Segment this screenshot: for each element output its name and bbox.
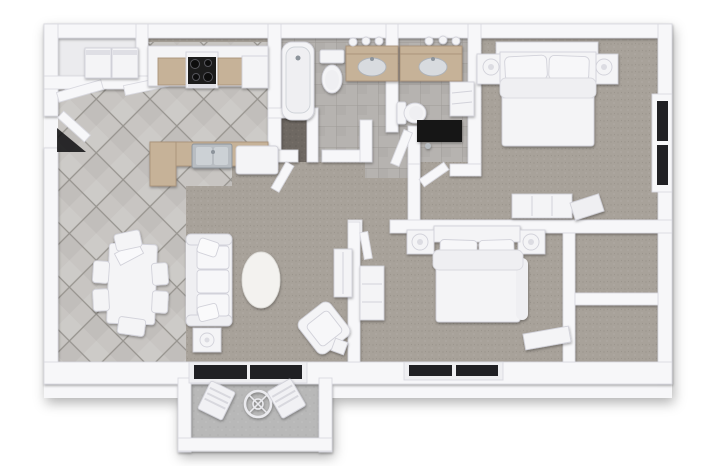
kitchen-sink-faucet <box>211 150 215 154</box>
master-lamp-left-finial <box>488 64 494 70</box>
bathtub-drain <box>296 56 301 61</box>
stove-burner-2 <box>205 60 212 67</box>
stove-burner-1 <box>191 60 200 69</box>
vanity-1-light-1 <box>349 38 357 46</box>
floorplan-render <box>0 0 720 466</box>
bed2-lamp-right-finial <box>528 239 534 245</box>
wall-closet-divider <box>575 293 658 305</box>
vanity-1-light-3 <box>375 37 383 45</box>
kitchen-counter-corner <box>242 56 268 88</box>
vanity-1-light-2 <box>362 37 370 45</box>
sliding-door-pane-left <box>194 365 247 379</box>
breakfast-bar-counter <box>236 146 278 174</box>
master-pillow-right <box>549 55 590 80</box>
vanity-1-backsplash <box>346 46 398 54</box>
master-pillow-left <box>504 55 547 81</box>
stove-burner-4 <box>204 73 213 82</box>
master-dresser <box>512 194 572 218</box>
toilet-1-tank <box>320 50 344 63</box>
wall-hall-right <box>408 164 420 224</box>
vanity-2-light-3 <box>452 37 460 45</box>
wall-patio-bottom <box>178 438 332 451</box>
kitchen-sink-basin-left <box>196 147 212 165</box>
dining-chair-right-1 <box>151 262 168 285</box>
sofa-cushion-2 <box>197 270 229 293</box>
wall-right <box>658 24 672 384</box>
vanity-2-light-1 <box>425 37 433 45</box>
wall-left-upper <box>44 24 58 116</box>
vanity-2-light-2 <box>439 36 447 44</box>
wall-bottom <box>44 362 672 384</box>
shower-drain <box>425 143 431 149</box>
bath2-shelf-unit <box>450 82 474 116</box>
toilet-2-seat <box>409 106 423 120</box>
wall-master-door-side <box>450 164 481 176</box>
dining-chair-right-2 <box>151 291 168 314</box>
sliding-door-pane-right <box>250 365 302 379</box>
master-bed-fold <box>500 78 596 98</box>
area-rug <box>242 252 280 308</box>
master-window-pane-bottom <box>657 145 668 185</box>
kitchen-counter-tan-left <box>158 58 186 85</box>
dining-chair-left-2 <box>92 289 109 312</box>
bed2-bed-fold <box>433 250 523 270</box>
wall-kitchen-bath1 <box>268 24 281 162</box>
dining-chair-left-1 <box>92 260 109 283</box>
vanity-2-backsplash <box>400 46 462 54</box>
washer-control-panel <box>86 50 110 55</box>
vanity-2-faucet <box>431 57 435 61</box>
dining-chair-bottom <box>117 316 146 337</box>
island-counter-vertical <box>150 142 176 186</box>
end-table-lamp-finial <box>205 338 210 343</box>
bed2-lamp-left-finial <box>417 239 423 245</box>
bed2-dresser <box>360 266 384 320</box>
kitchen-counter-tan-right <box>218 58 242 85</box>
toilet-1-seat <box>325 70 339 90</box>
floorplan-canvas <box>0 0 720 466</box>
master-lamp-right-finial <box>601 64 607 70</box>
wall-niche-left <box>360 120 372 162</box>
wall-left-lower <box>44 148 58 384</box>
bedroom2-window-pane-left <box>409 365 452 376</box>
sofa-back <box>186 234 197 326</box>
bedroom2-window-pane-right <box>456 365 498 376</box>
stove-control-panel <box>188 84 216 88</box>
dryer-control-panel <box>113 50 137 55</box>
stove-burner-3 <box>193 74 200 81</box>
master-window-pane-top <box>657 101 668 141</box>
kitchen-sink-basin-right <box>214 147 228 165</box>
vanity-1-faucet <box>370 57 374 61</box>
shower-dark <box>417 120 462 142</box>
